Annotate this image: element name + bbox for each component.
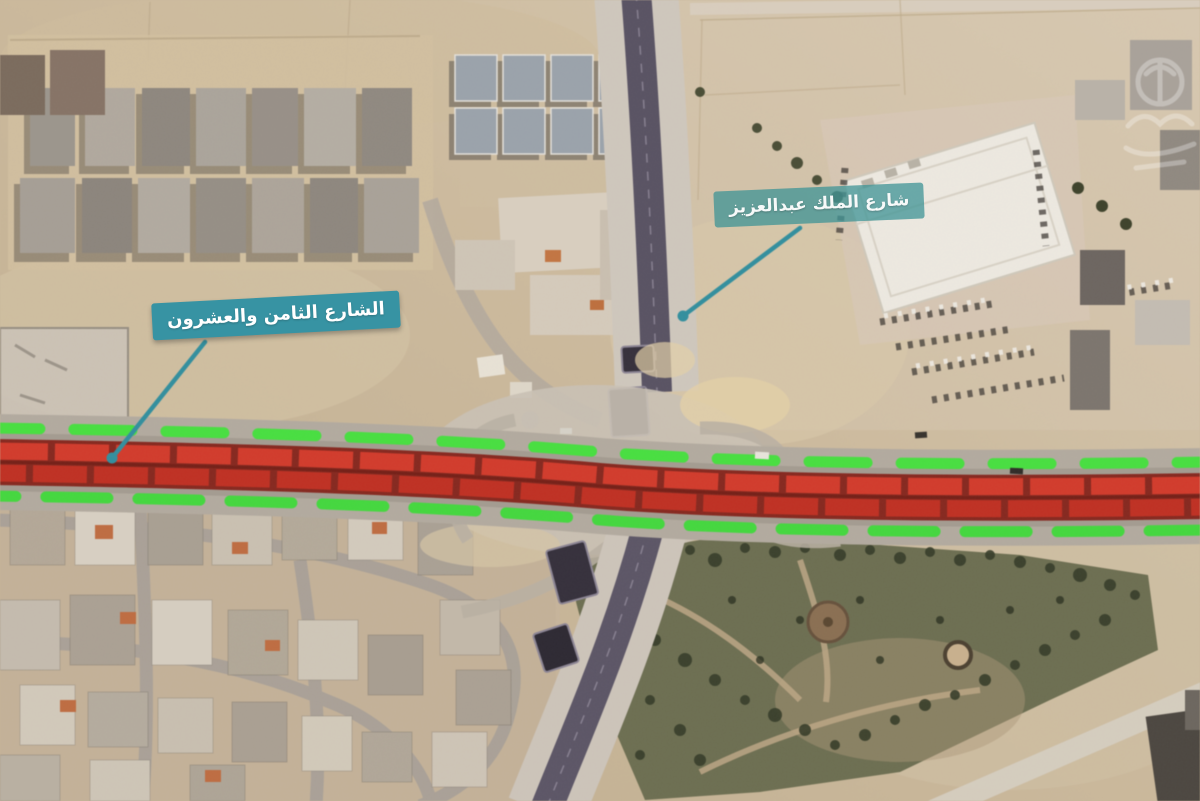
image-grain bbox=[0, 0, 1200, 801]
satellite-map-frame: الشارع الثامن والعشرون شارع الملك عبدالع… bbox=[0, 0, 1200, 801]
watermark-emblem-icon bbox=[1116, 48, 1200, 180]
satellite-scene bbox=[0, 0, 1200, 801]
